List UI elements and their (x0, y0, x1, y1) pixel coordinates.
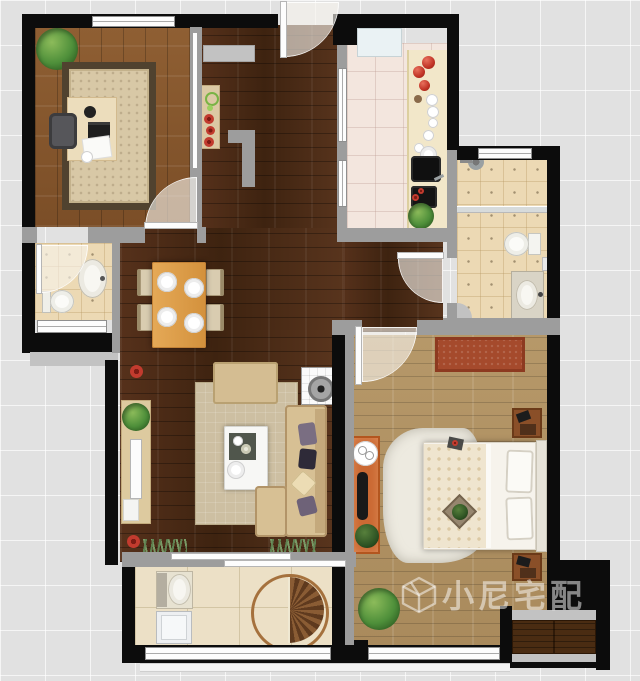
bed-plant (452, 504, 468, 520)
place-setting-2 (184, 278, 204, 298)
outer-sill (140, 663, 510, 672)
bed-tray-flower (452, 440, 458, 446)
bath-window (478, 148, 532, 159)
main-toilet-tank (528, 233, 541, 255)
tomato-3 (419, 80, 430, 91)
sofa-pillow-2 (298, 448, 317, 470)
bedroom-door-leaf (356, 327, 361, 384)
office-chair (49, 113, 77, 149)
wall-entry-pillar (333, 14, 357, 45)
watermark-brand-text: 小尼宅配 (442, 578, 586, 614)
dining-chair-right-1 (206, 269, 224, 296)
shower-arm (460, 160, 472, 163)
watermark-cube-logo (400, 576, 438, 614)
floorplan-canvas: 小尼宅配 (0, 0, 640, 681)
kitchen-window-1 (338, 68, 347, 142)
kitchen-plate-2 (427, 106, 439, 118)
wall-band-a (22, 227, 37, 243)
balcony-slider-panel-1 (172, 554, 290, 559)
guest-sink-faucet (100, 276, 105, 281)
nook-wall-right (596, 560, 610, 670)
tv-screen (131, 440, 141, 498)
console-red-flower-1 (204, 114, 214, 124)
place-setting-4 (184, 313, 204, 333)
bedroom-plant (358, 588, 400, 630)
wall-bath-left-upper (447, 150, 457, 258)
balcony-slider-panel-2 (225, 561, 345, 566)
wall-bedroom-top-right (417, 320, 447, 335)
guest-bath-door-leaf (37, 245, 41, 293)
tray-cup-2 (241, 444, 251, 454)
laundry-side-panel (157, 573, 167, 607)
console-red-flower-3 (204, 137, 214, 147)
washing-machine-lid (161, 615, 187, 640)
bed-blanket (424, 444, 486, 548)
wall-kitchen-bottom (337, 228, 447, 242)
wall-guest-bath-right (112, 228, 120, 353)
console-green-dot-decor (207, 105, 213, 111)
tv-cabinet-plant (122, 403, 150, 431)
kitchen-bowl-brown (414, 95, 422, 103)
console-green-ring-decor (205, 92, 219, 106)
wall-right (547, 160, 560, 615)
ottoman (213, 362, 278, 404)
bed-pillow-1 (505, 450, 533, 494)
hex-table-cup-2 (365, 451, 374, 460)
runner-plant (355, 524, 379, 548)
study-window (92, 16, 175, 27)
wall-top-kitchen (357, 14, 457, 28)
place-setting-1 (157, 272, 177, 292)
wall-left (22, 14, 35, 352)
main-toilet-bowl (504, 232, 529, 256)
tv-cabinet-box (124, 500, 138, 520)
entry-mat (203, 45, 255, 62)
study-door-leaf (145, 223, 197, 228)
kitchen-plate-1 (426, 94, 438, 106)
kitchen-window-2 (338, 160, 347, 207)
wardrobe (512, 620, 596, 654)
vanity-sink (516, 280, 538, 310)
wall-band-c (197, 227, 206, 243)
study-glass-strip (193, 33, 197, 168)
headboard (536, 440, 547, 552)
kitchen-plant-flower-2 (418, 188, 424, 194)
bedroom-bench (357, 472, 368, 520)
wall-living-bedroom-face (345, 335, 354, 645)
vanity-faucet-dot (538, 292, 543, 297)
laundry-basin (168, 574, 191, 605)
sofa-backrest (315, 409, 325, 533)
kitchen-plate-3 (428, 118, 438, 128)
main-bath-door-leaf (398, 253, 443, 258)
bed-seam (486, 444, 491, 548)
console-red-flower-2 (206, 126, 215, 135)
sofa-pillow-1 (298, 422, 318, 446)
kitchen-cup (423, 130, 434, 141)
fridge (357, 28, 402, 57)
wall-kitchen-right (447, 14, 459, 150)
kitchen-plant-flower-1 (412, 194, 419, 201)
wall-guest-bath-bottom (22, 333, 118, 353)
nook-wall-left (500, 606, 512, 668)
guest-toilet-bowl (50, 290, 74, 313)
entry-door-leaf (281, 2, 286, 57)
nook-face-bottom (512, 654, 596, 662)
floor-flower-decal-1 (130, 365, 143, 378)
guest-bath-window (37, 320, 107, 333)
nightstand-top-box (520, 424, 536, 435)
kitchen-plant (408, 203, 434, 229)
floor-flower-decal-2 (127, 535, 140, 548)
tomato-1 (413, 66, 425, 78)
place-setting-3 (157, 307, 177, 327)
balcony-window (145, 647, 331, 660)
desk-tray (84, 106, 96, 118)
wall-living-left (105, 360, 118, 565)
bedroom-red-rug (435, 337, 525, 372)
speaker-cone (308, 376, 334, 402)
bedroom-window (368, 647, 500, 660)
coffee-table-saucer (227, 461, 245, 479)
desk-cup (81, 151, 93, 163)
shower-glass-screen (457, 206, 547, 212)
tomato-2 (422, 56, 435, 69)
wall-living-bedroom (332, 332, 345, 645)
hall-niche-wall-b (242, 130, 255, 187)
wall-bath-bottom (443, 318, 560, 335)
dining-chair-right-2 (206, 304, 224, 331)
bed-pillow-2 (505, 497, 533, 541)
sofa-chaise (255, 486, 287, 537)
